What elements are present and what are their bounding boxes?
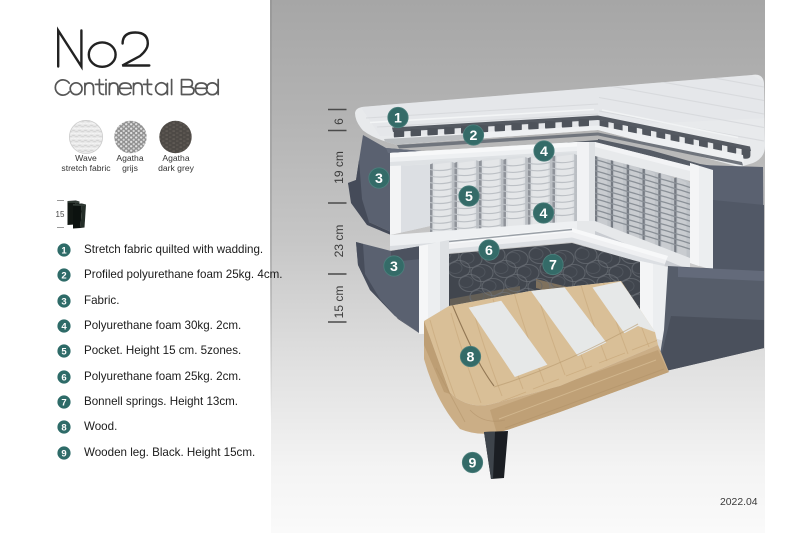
svg-text:1: 1	[61, 245, 67, 256]
svg-text:7: 7	[549, 258, 557, 274]
svg-text:15 cm: 15 cm	[332, 286, 346, 319]
svg-text:8: 8	[61, 422, 66, 433]
svg-text:19 cm: 19 cm	[332, 151, 346, 184]
svg-text:9: 9	[61, 448, 66, 459]
svg-text:7: 7	[61, 397, 66, 408]
svg-text:2: 2	[61, 270, 66, 281]
svg-text:6: 6	[61, 372, 66, 383]
svg-text:4: 4	[540, 144, 548, 160]
svg-text:8: 8	[467, 350, 475, 366]
svg-text:5: 5	[465, 189, 473, 205]
svg-text:23 cm: 23 cm	[332, 225, 346, 258]
svg-text:4: 4	[61, 321, 67, 332]
svg-text:5: 5	[61, 346, 67, 357]
svg-text:2: 2	[470, 128, 478, 144]
svg-text:15: 15	[56, 210, 65, 219]
svg-text:3: 3	[375, 171, 383, 187]
svg-text:9: 9	[469, 456, 477, 472]
svg-text:3: 3	[61, 296, 66, 307]
svg-text:1: 1	[394, 111, 402, 127]
svg-text:6: 6	[332, 118, 346, 125]
svg-text:3: 3	[390, 259, 398, 275]
svg-text:4: 4	[540, 206, 548, 222]
svg-text:6: 6	[485, 243, 493, 259]
